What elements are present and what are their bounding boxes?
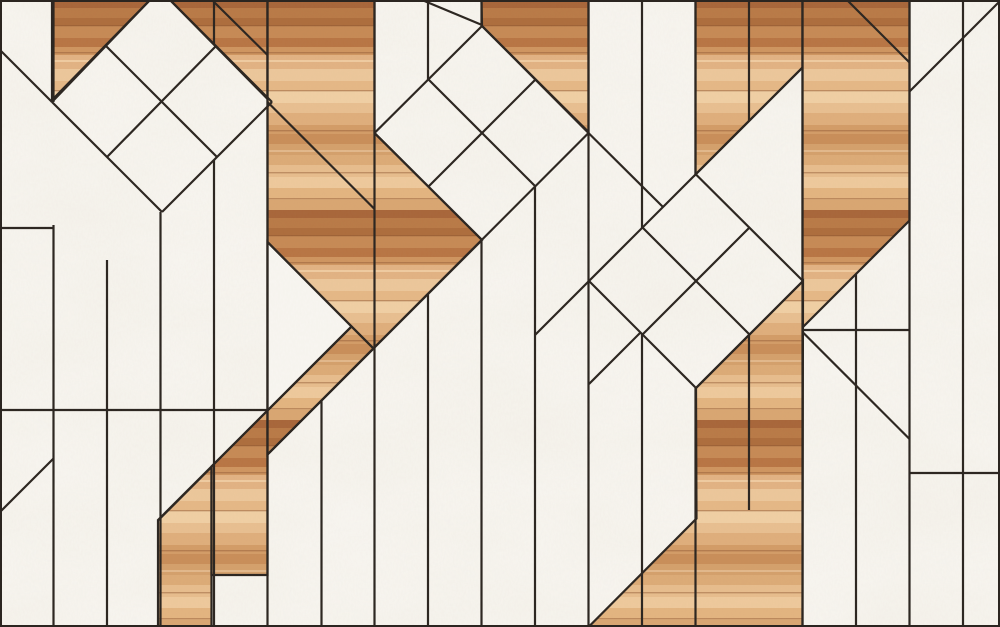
- parquet-pattern-image: [0, 0, 1000, 627]
- surface-grain-texture: [0, 0, 1000, 627]
- parquet-pattern-svg: [0, 0, 1000, 627]
